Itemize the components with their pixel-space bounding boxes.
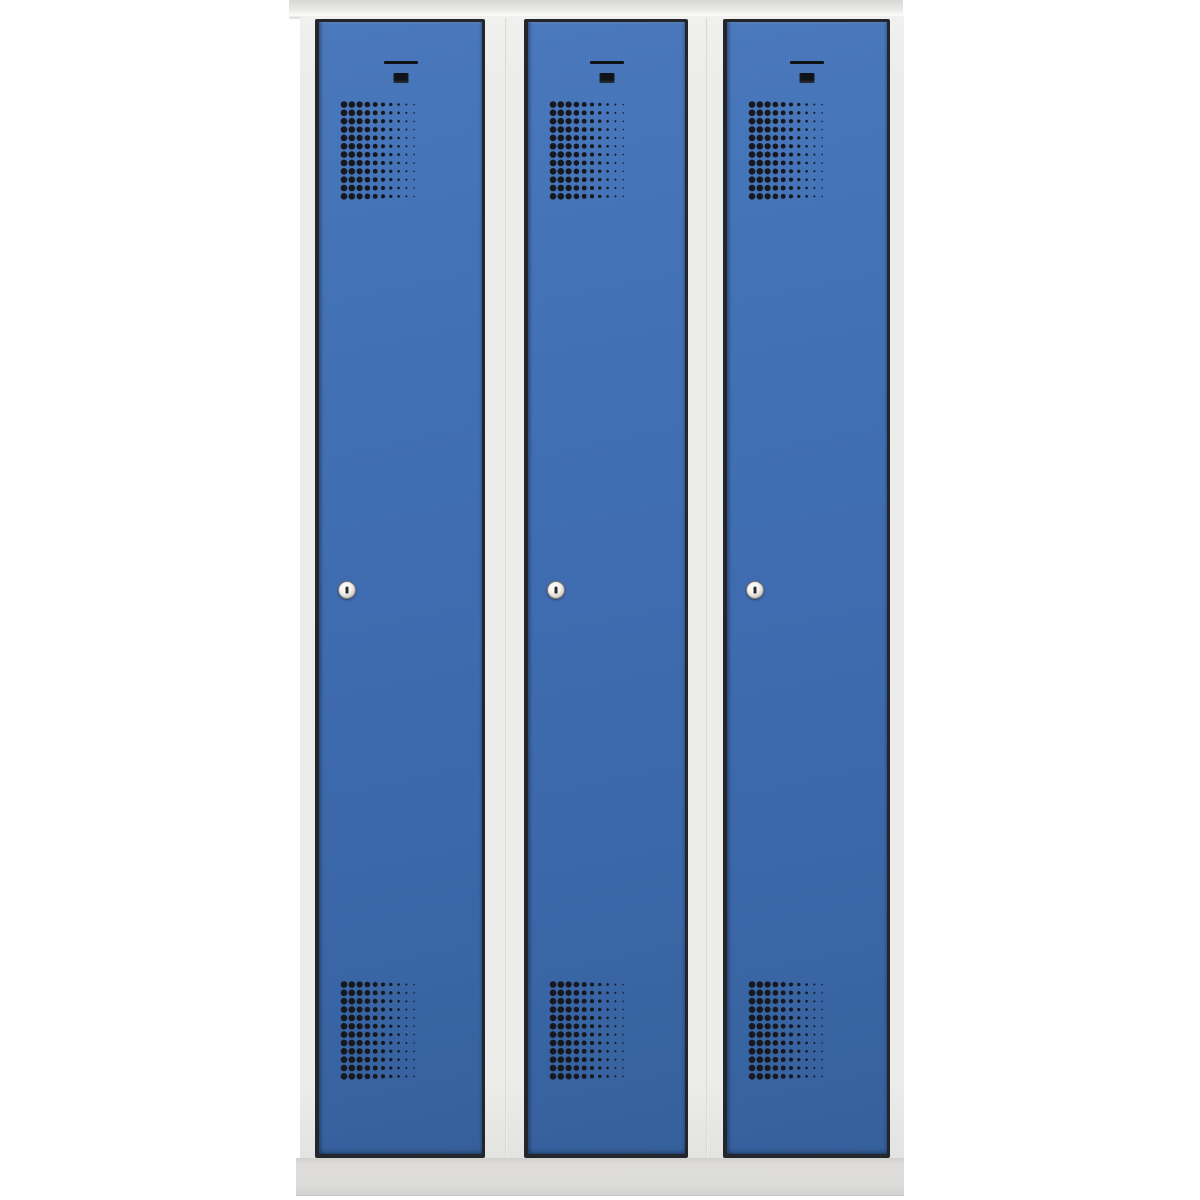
ventilation-perforation-bottom: [748, 980, 828, 1082]
ventilation-perforation-top: [340, 100, 420, 202]
frame-mullion-seam: [505, 18, 507, 1156]
cylinder-lock: [746, 581, 764, 599]
cylinder-lock: [338, 581, 356, 599]
label-slot-card-hole: [393, 73, 408, 83]
ventilation-perforation-top: [549, 100, 629, 202]
locker-base-plinth: [296, 1158, 904, 1196]
frame-mullion-seam: [706, 18, 708, 1156]
locker-door-2: [524, 19, 688, 1158]
label-slot-slit: [590, 61, 624, 64]
label-slot-card-hole: [599, 73, 614, 83]
locker-door-3: [723, 19, 890, 1158]
keyhole-icon: [346, 587, 349, 594]
product-photo-stage: [0, 0, 1200, 1200]
keyhole-icon: [555, 587, 558, 594]
label-slot-slit: [790, 61, 824, 64]
keyhole-icon: [754, 587, 757, 594]
cylinder-lock: [547, 581, 565, 599]
locker-door-1: [315, 19, 485, 1158]
ventilation-perforation-bottom: [340, 980, 420, 1082]
ventilation-perforation-bottom: [549, 980, 629, 1082]
locker-body: [300, 16, 904, 1162]
label-slot-card-hole: [800, 73, 815, 83]
label-slot-slit: [384, 61, 418, 64]
ventilation-perforation-top: [748, 100, 828, 202]
